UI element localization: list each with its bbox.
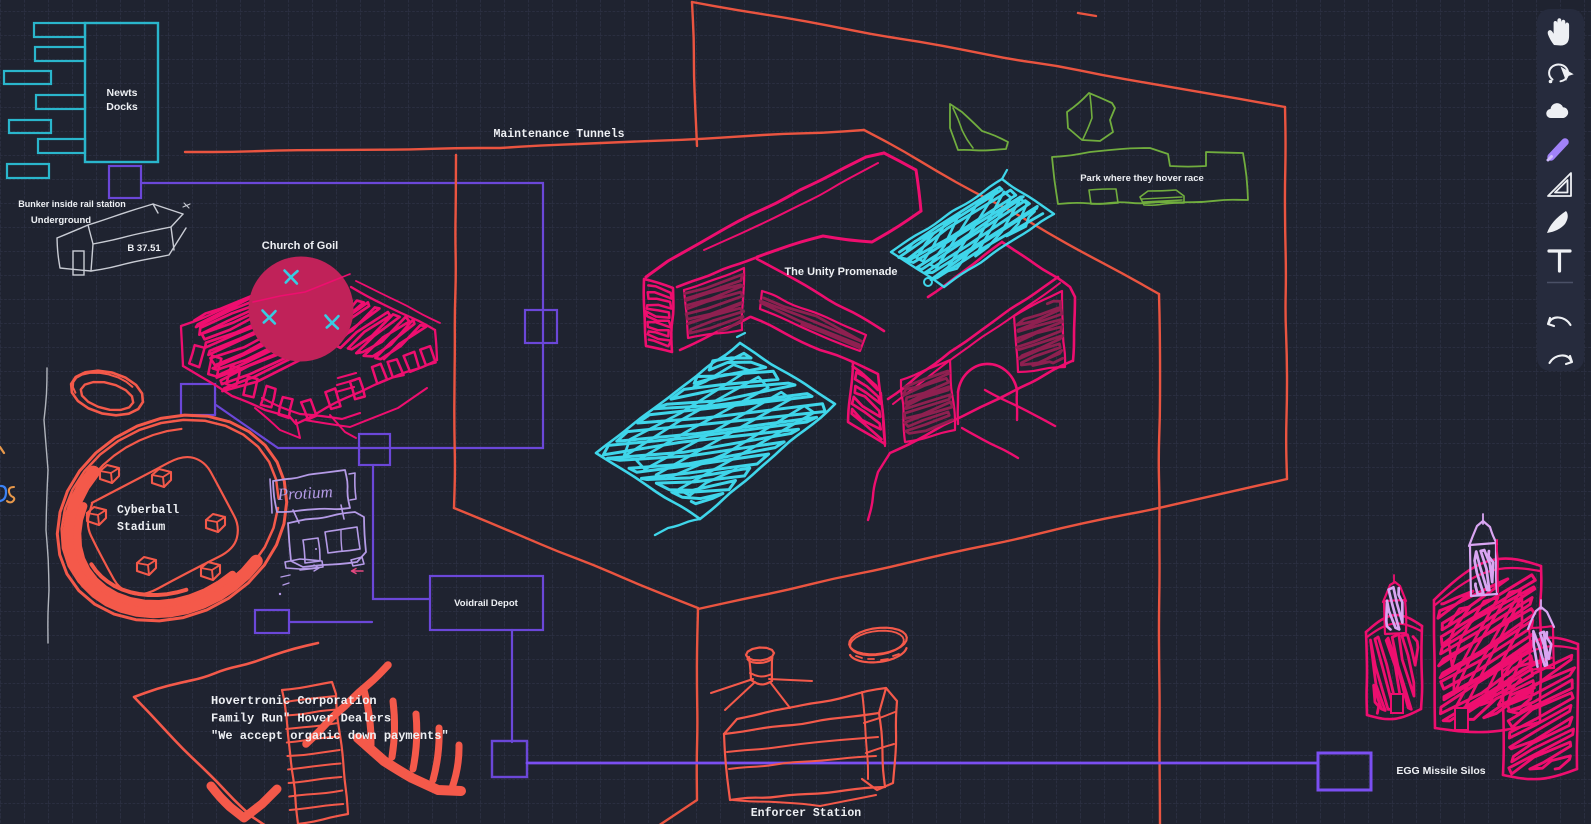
svg-text:Cyberball: Cyberball (117, 504, 179, 517)
svg-text:B 37.51: B 37.51 (127, 243, 161, 254)
svg-text:The Unity Promenade: The Unity Promenade (784, 266, 897, 278)
svg-text:Enforcer Station: Enforcer Station (751, 807, 862, 820)
svg-text:Bunker inside rail station: Bunker inside rail station (18, 199, 126, 209)
svg-text:Church of Goil: Church of Goil (262, 240, 338, 252)
svg-text:Hovertronic Corporation: Hovertronic Corporation (211, 694, 377, 708)
svg-text:Protium: Protium (276, 482, 333, 504)
svg-text:Docks: Docks (106, 101, 138, 113)
svg-text:Underground: Underground (31, 215, 91, 226)
svg-text:Newts: Newts (107, 87, 138, 99)
svg-text:Park where they hover race: Park where they hover race (1080, 173, 1204, 184)
svg-text:Family Run" Hover Dealers: Family Run" Hover Dealers (211, 712, 391, 726)
svg-text:Maintenance Tunnels: Maintenance Tunnels (493, 128, 624, 141)
svg-text:Voidrail Depot: Voidrail Depot (454, 598, 519, 609)
svg-text:Stadium: Stadium (117, 521, 165, 534)
svg-text:"We accept organic down paymen: "We accept organic down payments" (211, 729, 449, 743)
svg-text:EGG Missile Silos: EGG Missile Silos (1396, 765, 1485, 777)
